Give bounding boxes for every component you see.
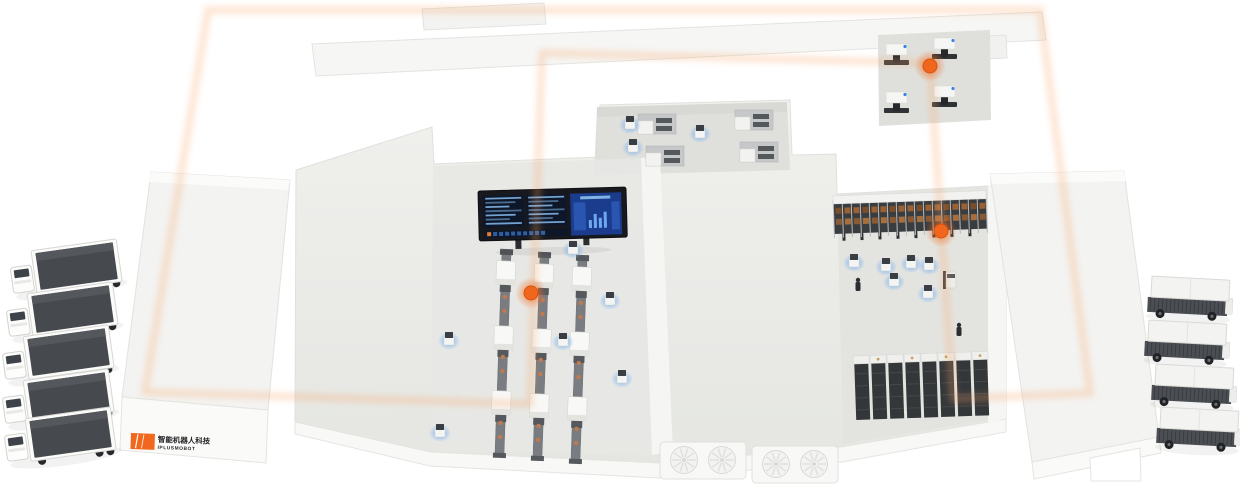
mobile-robot [611, 370, 633, 388]
mobile-robot [429, 424, 451, 442]
worker-figure [856, 278, 861, 291]
mobile-robot [918, 257, 940, 275]
left-warehouse-building: 智能机器人科技 IPLUSMOBOT [120, 172, 290, 463]
dashboard-panel-b [526, 194, 567, 227]
cabinet-unit [638, 114, 676, 134]
logo-text-cn: 智能机器人科技 [158, 434, 211, 446]
mobile-robot [562, 241, 584, 259]
cargo-vehicle [1155, 407, 1240, 457]
cabinet-unit [735, 110, 773, 130]
mobile-robot [843, 254, 865, 272]
right-warehouse-building [990, 171, 1161, 481]
route-node [914, 50, 946, 82]
right-building-roof [990, 171, 1159, 462]
mobile-robot [599, 292, 621, 310]
route-node [515, 277, 547, 309]
worker-figure [957, 323, 962, 336]
cargo-vehicle [1146, 276, 1234, 326]
route-node [925, 215, 957, 247]
mobile-robot [883, 273, 905, 291]
cabinet-unit [740, 142, 778, 162]
mobile-robot [552, 333, 574, 351]
mobile-robot [438, 332, 460, 350]
mobile-robot [689, 125, 711, 143]
hvac-unit [752, 446, 838, 483]
factory-illustration: 智能机器人科技 IPLUSMOBOT [0, 0, 1240, 488]
cabinet-unit [646, 146, 684, 166]
mobile-robot [619, 116, 641, 134]
cargo-vehicle [1143, 320, 1231, 370]
factory-scene: 智能机器人科技 IPLUSMOBOT [0, 0, 1240, 488]
mobile-robot [622, 139, 644, 157]
machine-unit [884, 92, 909, 113]
hvac-unit [660, 442, 746, 479]
mobile-robot [917, 285, 939, 303]
dashboard-panel-a [483, 195, 524, 228]
dashboard-chart-panel [570, 192, 622, 235]
